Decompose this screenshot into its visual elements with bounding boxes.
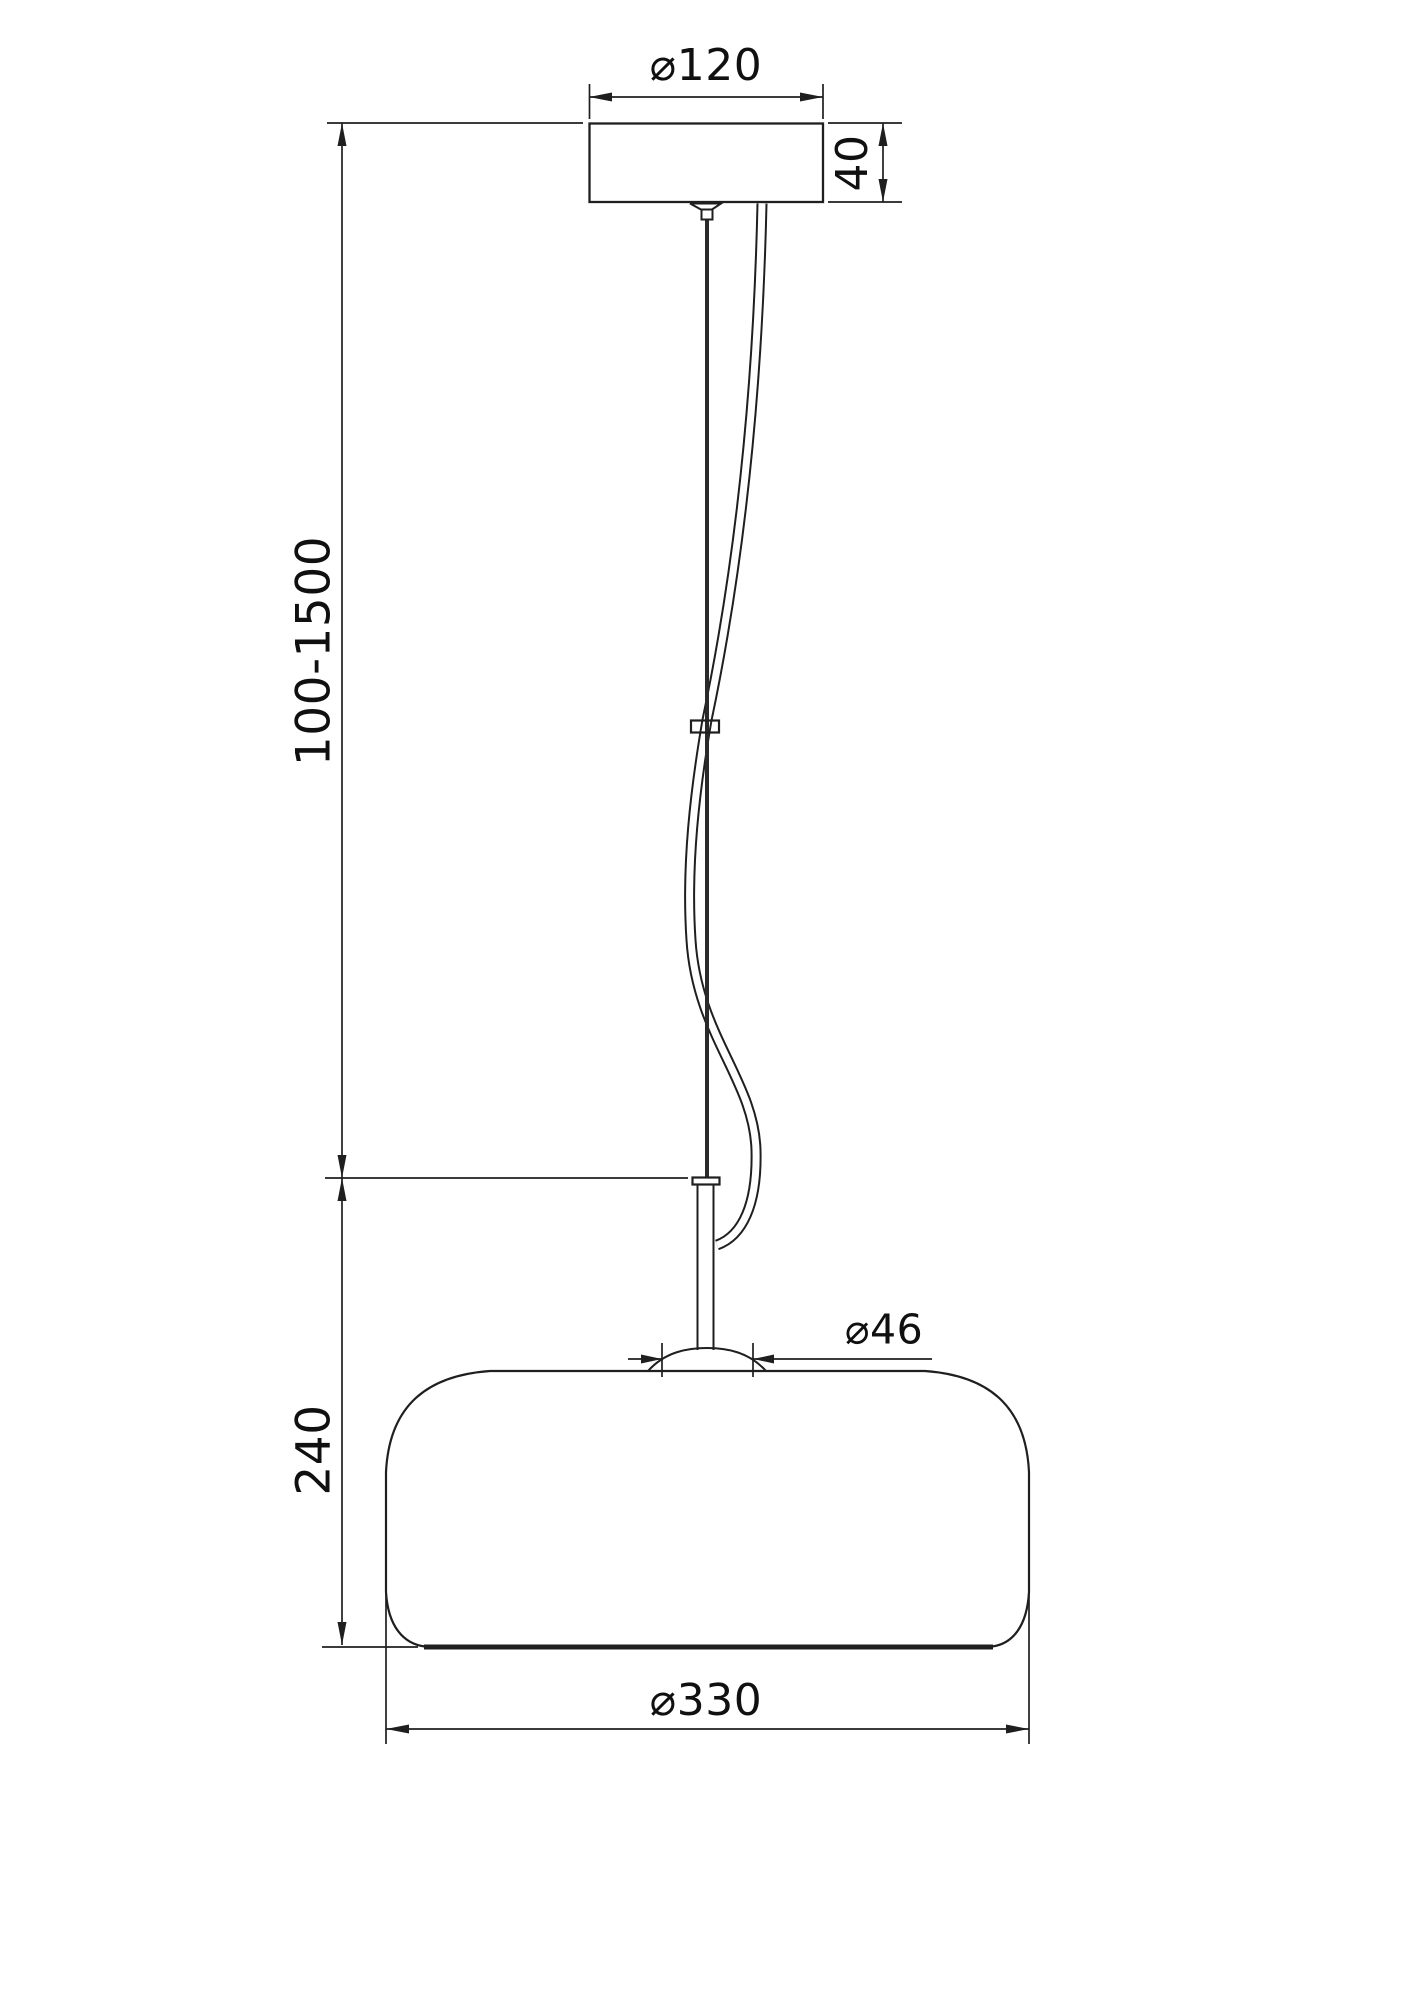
- arrowhead: [338, 1622, 347, 1645]
- arrowhead: [338, 1178, 347, 1201]
- arrowhead: [879, 179, 888, 202]
- cable-fitting-block: [702, 210, 713, 220]
- arrowhead: [338, 1155, 347, 1178]
- lamp-shade-outline: [386, 1371, 1029, 1647]
- suspension-length-dimension: [325, 123, 688, 1178]
- dimension-arrowheads: [338, 93, 1030, 1734]
- ceiling-canopy: [590, 124, 824, 203]
- canopy-diameter-label: ⌀120: [650, 44, 762, 88]
- stem-cap: [693, 1178, 720, 1185]
- arrowhead: [1006, 1725, 1029, 1734]
- pendant-lamp-technical-drawing: ⌀120 40 100-1500 240 ⌀46 ⌀330: [0, 0, 1413, 2000]
- fixture-height-label: 240: [291, 1404, 338, 1495]
- canopy-height-label: 40: [831, 135, 875, 192]
- shade-diameter-label: ⌀330: [650, 1679, 762, 1723]
- arrowhead: [338, 123, 347, 146]
- arrowhead: [800, 93, 823, 102]
- arrowhead: [386, 1725, 409, 1734]
- arrowhead: [879, 123, 888, 146]
- arrowhead: [589, 93, 612, 102]
- socket-diameter-label: ⌀46: [845, 1310, 923, 1351]
- power-cord-outline: [690, 204, 762, 1246]
- socket-dome: [648, 1348, 766, 1371]
- suspension-length-label: 100-1500: [291, 536, 338, 766]
